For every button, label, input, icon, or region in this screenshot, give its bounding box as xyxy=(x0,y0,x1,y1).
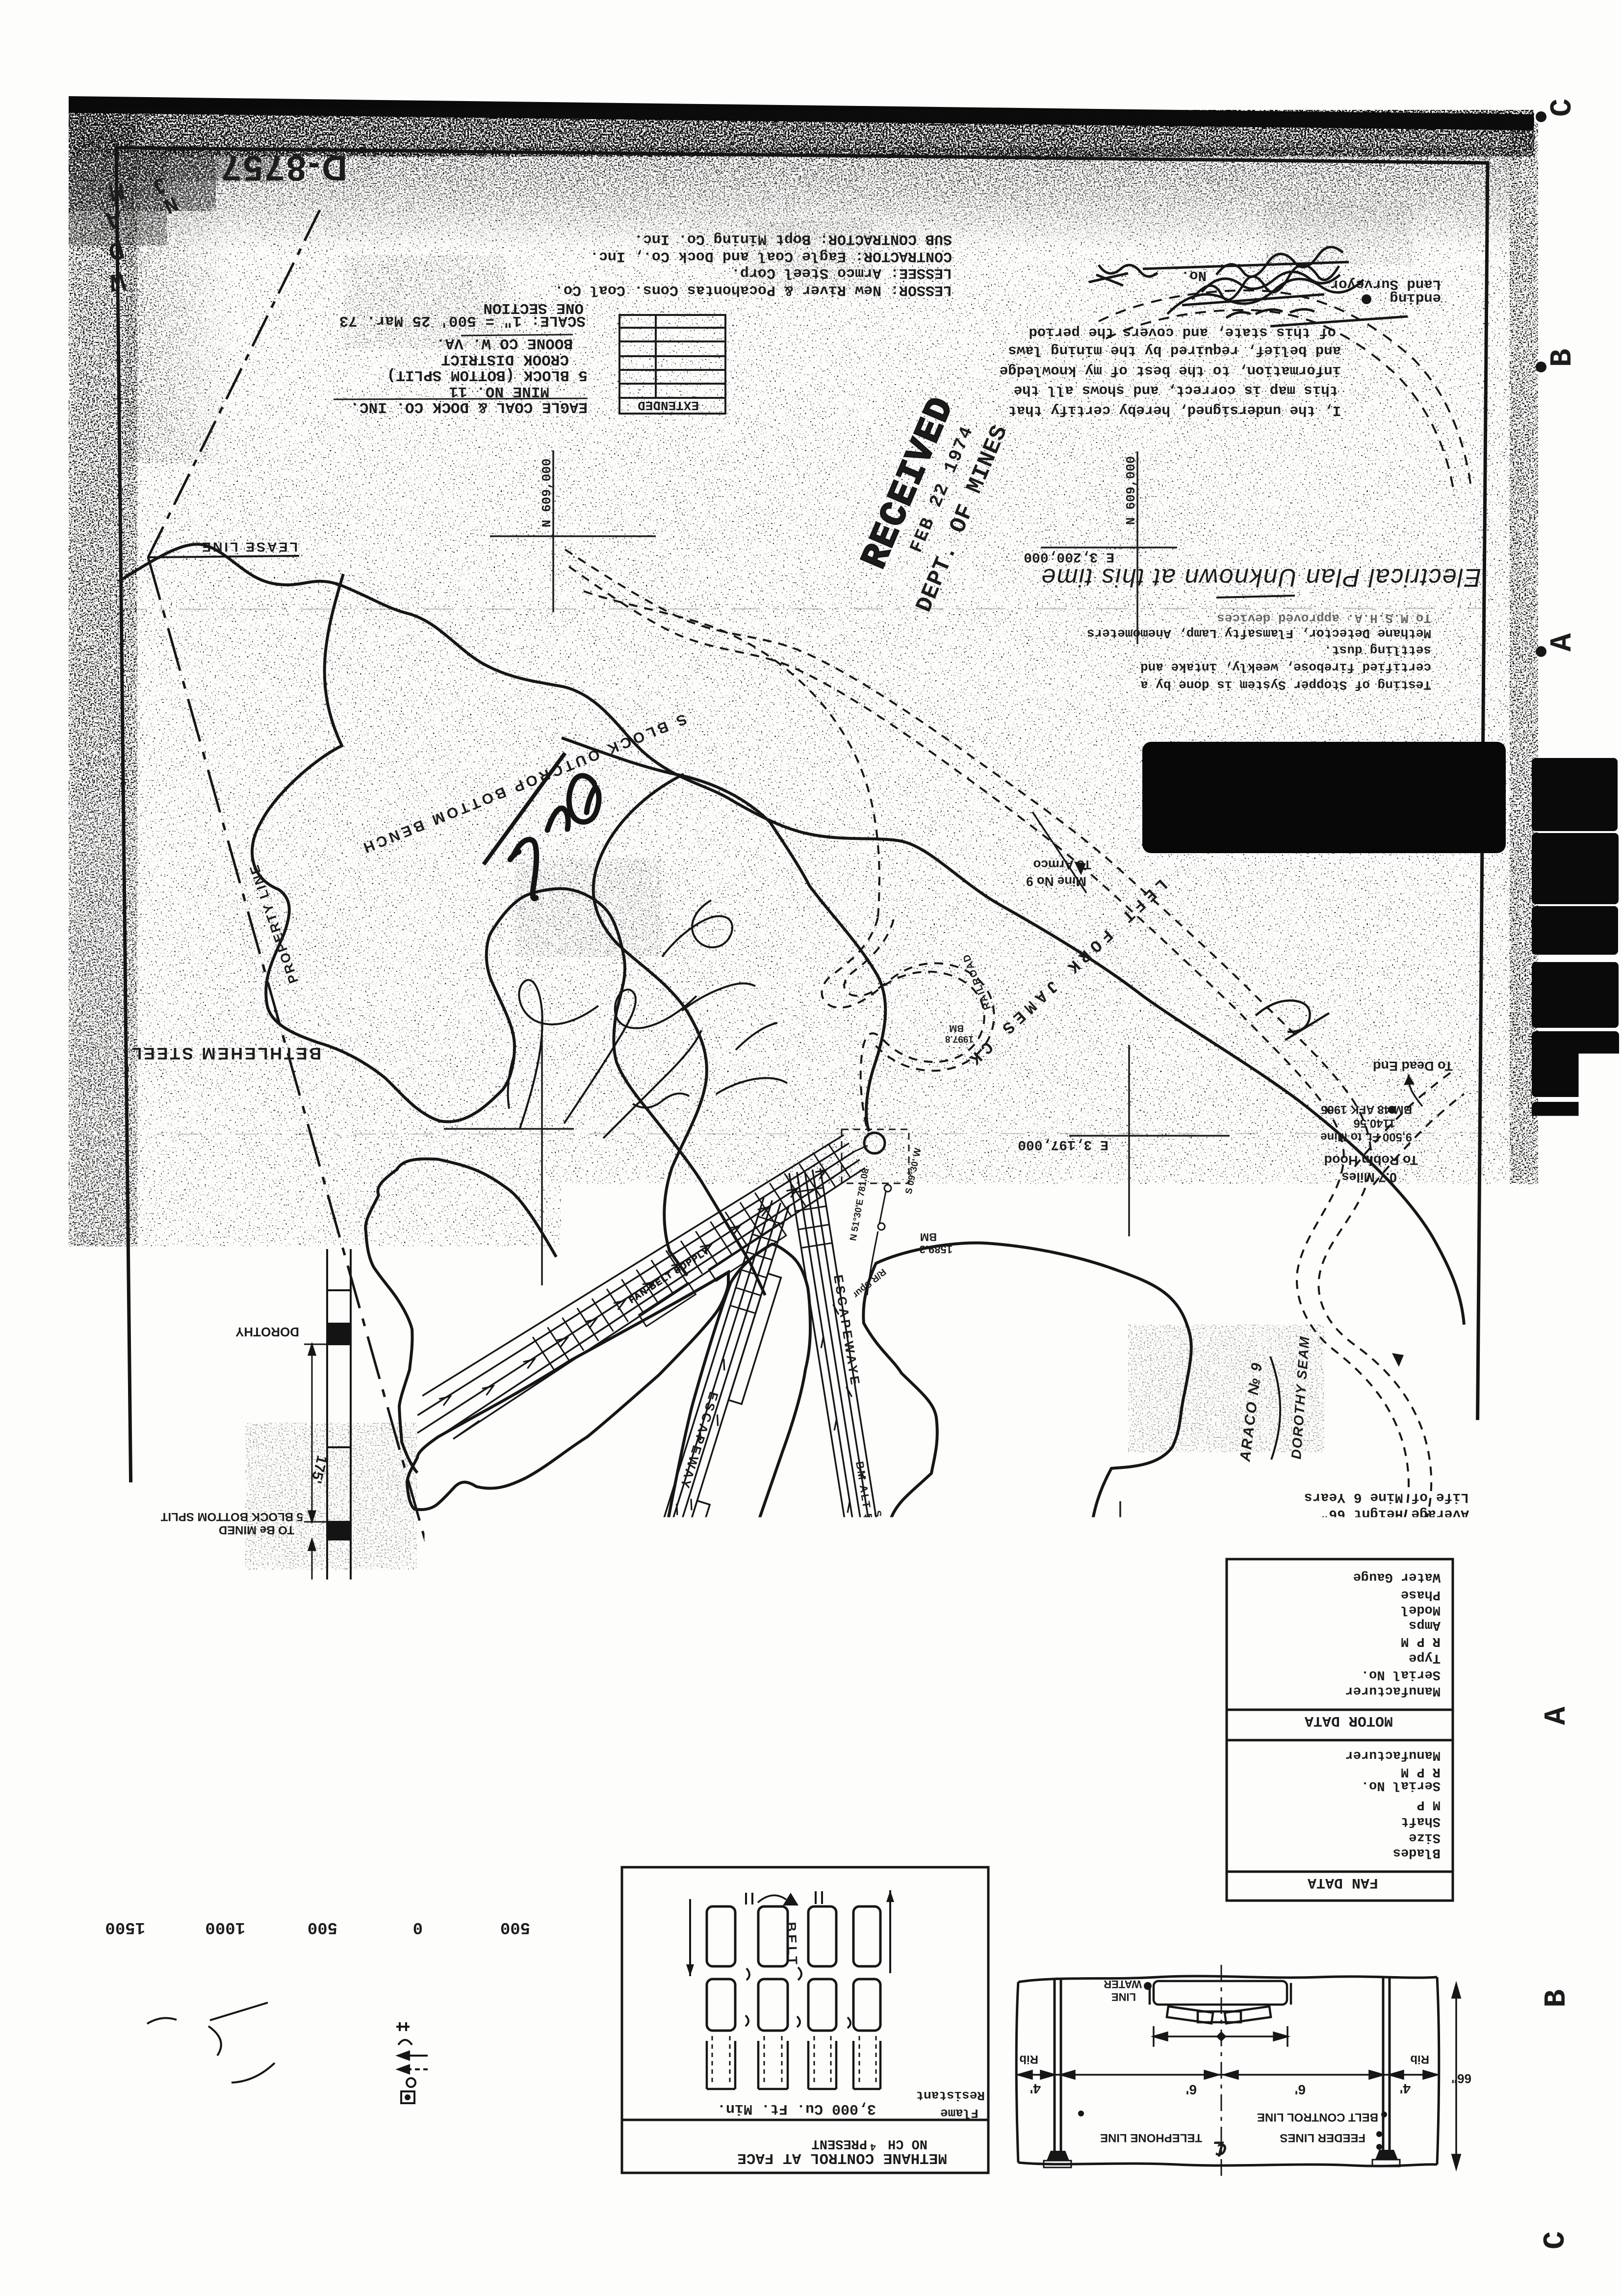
svg-text:W/DOOR: W/DOOR xyxy=(274,1999,320,2014)
svg-text:BM: BM xyxy=(949,1023,964,1033)
svg-text:B: B xyxy=(1539,1989,1574,2008)
svg-text:BENCH MARK: BENCH MARK xyxy=(316,2088,392,2103)
svg-text:": " xyxy=(335,1962,343,1977)
svg-text:of this state, and covers the: of this state, and covers the period xyxy=(1029,324,1336,340)
svg-text:Ventilation Devices are Masone: Ventilation Devices are Masonery xyxy=(1205,1522,1469,1538)
svg-text:20': 20' xyxy=(1211,1930,1232,1947)
svg-text:MOTOR DATA: MOTOR DATA xyxy=(1305,1712,1393,1729)
svg-text:To Robin Hood: To Robin Hood xyxy=(1324,1153,1418,1168)
svg-text:No Oil or Gas Wells: No Oil or Gas Wells xyxy=(1313,1539,1469,1554)
svg-text:DOROTHY: DOROTHY xyxy=(235,1325,299,1339)
svg-text:": " xyxy=(372,1981,380,1995)
svg-text:LINE: LINE xyxy=(1111,1991,1136,2003)
svg-text:RETURN AIR: RETURN AIR xyxy=(316,2061,392,2076)
svg-text:No.: No. xyxy=(1181,267,1207,284)
svg-text:M P: M P xyxy=(1416,1797,1441,1812)
svg-text:0: 0 xyxy=(413,1918,423,1936)
svg-text:LESSEE: Armco Steel Corp.: LESSEE: Armco Steel Corp. xyxy=(731,264,952,281)
svg-text:": " xyxy=(372,1999,380,2014)
svg-text:Manufacturer: Manufacturer xyxy=(1345,1748,1441,1762)
svg-text:Mine No 9: Mine No 9 xyxy=(1026,874,1086,889)
svg-text:500: 500 xyxy=(500,1918,530,1936)
svg-text:Testing of Stopper System is d: Testing of Stopper System is done by a xyxy=(1140,678,1431,692)
svg-text:Rib: Rib xyxy=(1019,2053,1038,2066)
svg-text:6': 6' xyxy=(1186,2082,1197,2097)
svg-text:MINE NO. 11: MINE NO. 11 xyxy=(449,383,549,400)
svg-text:BELT: BELT xyxy=(784,1922,800,1967)
svg-text:Resistant: Resistant xyxy=(916,2088,985,2103)
svg-text:1589.3: 1589.3 xyxy=(920,1243,953,1255)
svg-text:FEEDER LINES: FEEDER LINES xyxy=(1280,2131,1365,2144)
svg-text:Blades: Blades xyxy=(1393,1845,1441,1860)
svg-text:SUB CONTRACTOR: Bopt Mining C: SUB CONTRACTOR: Bopt Mining Co. Inc. xyxy=(634,231,952,247)
svg-text:Rib: Rib xyxy=(1410,2053,1429,2066)
svg-text:SPLIT MINED IN 1940s: SPLIT MINED IN 1940s xyxy=(174,1606,299,1619)
svg-text:LEASE LINE: LEASE LINE xyxy=(200,540,298,554)
svg-text:Size: Size xyxy=(1409,1830,1441,1845)
svg-text:Methane Detector, Flamsafty La: Methane Detector, Flamsafty Lamp, Anemom… xyxy=(1087,626,1431,641)
svg-text:TO Be MINED: TO Be MINED xyxy=(219,1523,294,1537)
svg-text:D-8757: D-8757 xyxy=(220,148,347,187)
svg-text:WATER: WATER xyxy=(1104,1978,1142,1990)
svg-text:Electrical Plan Unknown at thi: Electrical Plan Unknown at this time xyxy=(1040,563,1481,592)
svg-text:Type: Type xyxy=(1409,1650,1441,1665)
svg-text:A: A xyxy=(1545,633,1580,652)
svg-text:BM: BM xyxy=(920,1231,937,1243)
svg-text:EXTENDED: EXTENDED xyxy=(638,398,699,413)
svg-text:BOONE CO W. VA.: BOONE CO W. VA. xyxy=(436,335,573,352)
svg-text:Amps: Amps xyxy=(1409,1618,1441,1632)
svg-text:METHANE CONTROL AT FACE: METHANE CONTROL AT FACE xyxy=(737,2149,947,2166)
svg-text:LEGEND: LEGEND xyxy=(326,2120,387,2137)
svg-text:1500: 1500 xyxy=(105,1918,145,1936)
svg-text:NO CH: NO CH xyxy=(888,2136,927,2151)
svg-text:Scale feet: Scale feet xyxy=(297,1870,375,1886)
svg-text:TELEPHONE LINE: TELEPHONE LINE xyxy=(1100,2131,1202,2144)
svg-text:PRESENT: PRESENT xyxy=(812,2136,867,2151)
svg-text:BETHLEHEM STEEL: BETHLEHEM STEEL xyxy=(129,1044,321,1063)
svg-text:BM 48 AFK 1965: BM 48 AFK 1965 xyxy=(1321,1103,1412,1116)
svg-text:": " xyxy=(372,1962,380,1977)
svg-text:Shaft: Shaft xyxy=(1401,1814,1441,1828)
svg-text:4': 4' xyxy=(1030,2081,1041,2096)
svg-text:BELT CONTROL LINE: BELT CONTROL LINE xyxy=(1257,2111,1378,2124)
svg-text:Model: Model xyxy=(1401,1602,1441,1617)
svg-text:Manufacturer: Manufacturer xyxy=(1345,1683,1441,1698)
svg-text:C: C xyxy=(1538,2231,1573,2249)
svg-text:To M.S.H.A. approved devices: To M.S.H.A. approved devices xyxy=(1217,611,1431,626)
svg-text:CHECK CURTAIN: CHECK CURTAIN xyxy=(293,2033,392,2048)
svg-text:R P M: R P M xyxy=(1401,1764,1441,1779)
svg-text:B: B xyxy=(1545,349,1580,367)
svg-text:SURVEY STATION: SURVEY STATION xyxy=(285,2075,392,2089)
svg-text:Serial No.: Serial No. xyxy=(1361,1778,1441,1793)
svg-text:information, to the best of my: information, to the best of my knowledge xyxy=(1000,363,1341,379)
svg-text:W/BOX DOOR: W/BOX DOOR xyxy=(244,1981,320,1995)
svg-text:E 3,194,000: E 3,194,000 xyxy=(1051,1718,1141,1733)
svg-text:5 BLOCK BOTTOM SPLIT: 5 BLOCK BOTTOM SPLIT xyxy=(160,1510,303,1523)
svg-text:E 3,200,000: E 3,200,000 xyxy=(1024,549,1114,564)
svg-text:N: N xyxy=(706,1744,725,1772)
svg-text:INTAKE AIR: INTAKE AIR xyxy=(316,2047,392,2062)
svg-text:CROOK DISTRICT: CROOK DISTRICT xyxy=(441,351,569,368)
svg-text:Serial No.: Serial No. xyxy=(1361,1667,1441,1682)
svg-text:1000: 1000 xyxy=(205,1918,245,1936)
svg-text:FAN DATA: FAN DATA xyxy=(1308,1874,1378,1891)
svg-text:N 609,000: N 609,000 xyxy=(1124,456,1138,525)
svg-text:℄: ℄ xyxy=(1213,2138,1227,2159)
svg-text:0.7 Miles: 0.7 Miles xyxy=(1341,1170,1397,1185)
svg-text:SCALE: 1" = 500' 25 Mar. 73: SCALE: 1" = 500' 25 Mar. 73 xyxy=(339,312,586,329)
svg-text:5 BLOCK MIDDLE & TOP: 5 BLOCK MIDDLE & TOP xyxy=(164,1593,303,1606)
svg-text:CONTRACTOR: Eagle Coal and Do: CONTRACTOR: Eagle Coal and Dock Co., Inc… xyxy=(590,248,952,264)
svg-text:4': 4' xyxy=(1400,2081,1411,2096)
svg-text:Flame: Flame xyxy=(940,2106,978,2120)
svg-text:1140.56: 1140.56 xyxy=(1354,1117,1395,1130)
svg-text:and belief, required by the mi: and belief, required by the mining laws xyxy=(1008,342,1341,359)
svg-text:5 BLOCK (BOTTOM SPLIT): 5 BLOCK (BOTTOM SPLIT) xyxy=(387,366,588,384)
svg-text:Average Height 66": Average Height 66" xyxy=(1321,1506,1469,1521)
svg-text:N 609,000: N 609,000 xyxy=(540,459,554,527)
svg-text:Water Gauge: Water Gauge xyxy=(1353,1569,1441,1584)
svg-text:R P M: R P M xyxy=(1401,1634,1441,1648)
svg-text:settling dust.: settling dust. xyxy=(1324,643,1431,657)
svg-text:": " xyxy=(335,1999,343,2014)
svg-text:BELT ENTRY: BELT ENTRY xyxy=(1148,1947,1287,1963)
svg-text:E 3,197,000: E 3,197,000 xyxy=(1018,1137,1108,1152)
svg-text:W/REGULATOR: W/REGULATOR xyxy=(236,1962,320,1977)
svg-text:500: 500 xyxy=(308,1918,337,1936)
svg-text:To Dead End: To Dead End xyxy=(1373,1059,1453,1073)
svg-text:": " xyxy=(335,1981,343,1995)
svg-text:EAGLE COAL & DOCK CO. INC.: EAGLE COAL & DOCK CO. INC. xyxy=(350,398,588,416)
svg-text:1997.8: 1997.8 xyxy=(945,1034,974,1044)
svg-text:6': 6' xyxy=(1295,2082,1306,2097)
svg-text:certified firebose, weekly, in: certified firebose, weekly, intake and xyxy=(1140,660,1431,675)
svg-text:9,500 Ft. to Mine: 9,500 Ft. to Mine xyxy=(1320,1130,1412,1144)
svg-text:C: C xyxy=(1545,99,1580,117)
svg-text:Life of Mine 6 Years: Life of Mine 6 Years xyxy=(1304,1489,1469,1505)
svg-text:PERMANENT STOPPING: PERMANENT STOPPING xyxy=(255,2018,392,2033)
svg-text:66": 66" xyxy=(1451,2071,1471,2086)
svg-text:LESSOR: New River & Pocahonta: LESSOR: New River & Pocahontas Cons. Coa… xyxy=(555,282,952,298)
svg-text:I, the undersigned, hereby cer: I, the undersigned, hereby certify that xyxy=(1008,402,1341,418)
svg-text:3,000 Cu. Ft. Min.: 3,000 Cu. Ft. Min. xyxy=(717,2100,876,2117)
svg-text:Phase: Phase xyxy=(1401,1587,1441,1602)
svg-text:this map is correct, and shows: this map is correct, and shows all the xyxy=(1014,382,1338,398)
